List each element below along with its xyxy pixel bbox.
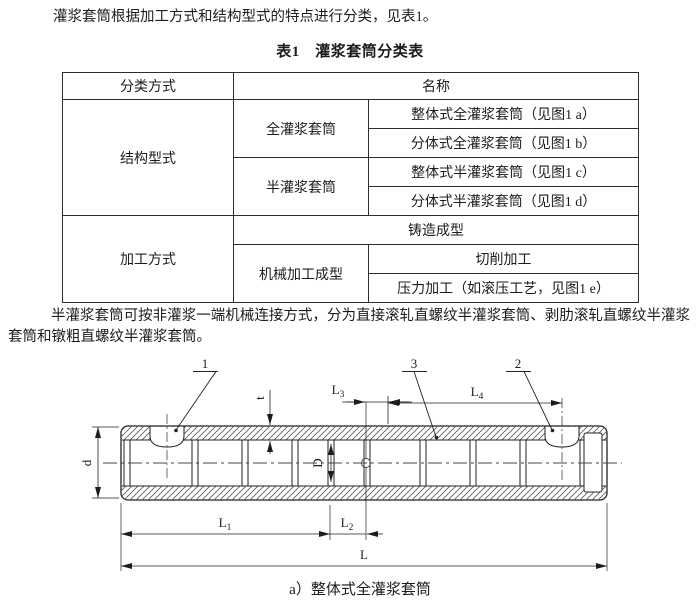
header-name: 名称 (234, 73, 639, 100)
cell-machining: 机械加工成型 (234, 245, 369, 303)
dimension-L: L (121, 547, 607, 566)
cell-process-method: 加工方式 (63, 216, 234, 303)
svg-text:L2: L2 (341, 515, 354, 533)
callout-2: 2 (515, 356, 522, 371)
svg-text:d: d (79, 459, 94, 466)
document-page: 灌浆套筒根据加工方式和结构型式的特点进行分类，见表1。 表1 灌浆套筒分类表 分… (0, 0, 700, 604)
dimension-L1: L1 (121, 515, 330, 534)
header-classification-method: 分类方式 (63, 73, 234, 100)
dimension-L4: L4 (388, 384, 562, 403)
cell-half-grout-sleeve: 半灌浆套筒 (234, 158, 369, 216)
cell-full-integral: 整体式全灌浆套筒（见图1 a） (369, 100, 639, 129)
figure-caption: a）整体式全灌浆套筒 (289, 580, 431, 598)
callout-1: 1 (202, 356, 209, 371)
cell-pressing: 压力加工（如滚压工艺，见图1 e） (369, 274, 639, 303)
callout-3: 3 (411, 356, 418, 371)
svg-text:L4: L4 (471, 384, 484, 402)
cell-structure-type: 结构型式 (63, 100, 234, 216)
cell-cutting: 切削加工 (369, 245, 639, 274)
dimension-L2: L2 (330, 515, 383, 534)
cell-full-split: 分体式全灌浆套筒（见图1 b） (369, 129, 639, 158)
svg-text:t: t (252, 396, 267, 400)
svg-text:D: D (310, 458, 325, 467)
cell-half-split: 分体式半灌浆套筒（见图1 d） (369, 187, 639, 216)
classification-table: 分类方式 名称 结构型式 全灌浆套筒 整体式全灌浆套筒（见图1 a） 分体式全灌… (62, 72, 639, 303)
sleeve-figure: 1 3 2 t L3 L4 d (60, 355, 700, 604)
cell-full-grout-sleeve: 全灌浆套筒 (234, 100, 369, 158)
table-title: 表1 灌浆套筒分类表 (0, 40, 700, 61)
svg-text:L: L (360, 547, 368, 562)
end-collar (584, 433, 602, 492)
body-paragraph: 半灌浆套筒可按非灌浆一端机械连接方式，分为直接滚轧直螺纹半灌浆套筒、剥肋滚轧直螺… (8, 306, 690, 348)
svg-text:L1: L1 (219, 515, 232, 533)
dimension-d: d (79, 427, 119, 498)
intro-paragraph: 灌浆套筒根据加工方式和结构型式的特点进行分类，见表1。 (10, 7, 688, 28)
svg-text:L3: L3 (332, 382, 345, 400)
cell-half-integral: 整体式半灌浆套筒（见图1 c） (369, 158, 639, 187)
cell-casting: 铸造成型 (234, 216, 639, 245)
